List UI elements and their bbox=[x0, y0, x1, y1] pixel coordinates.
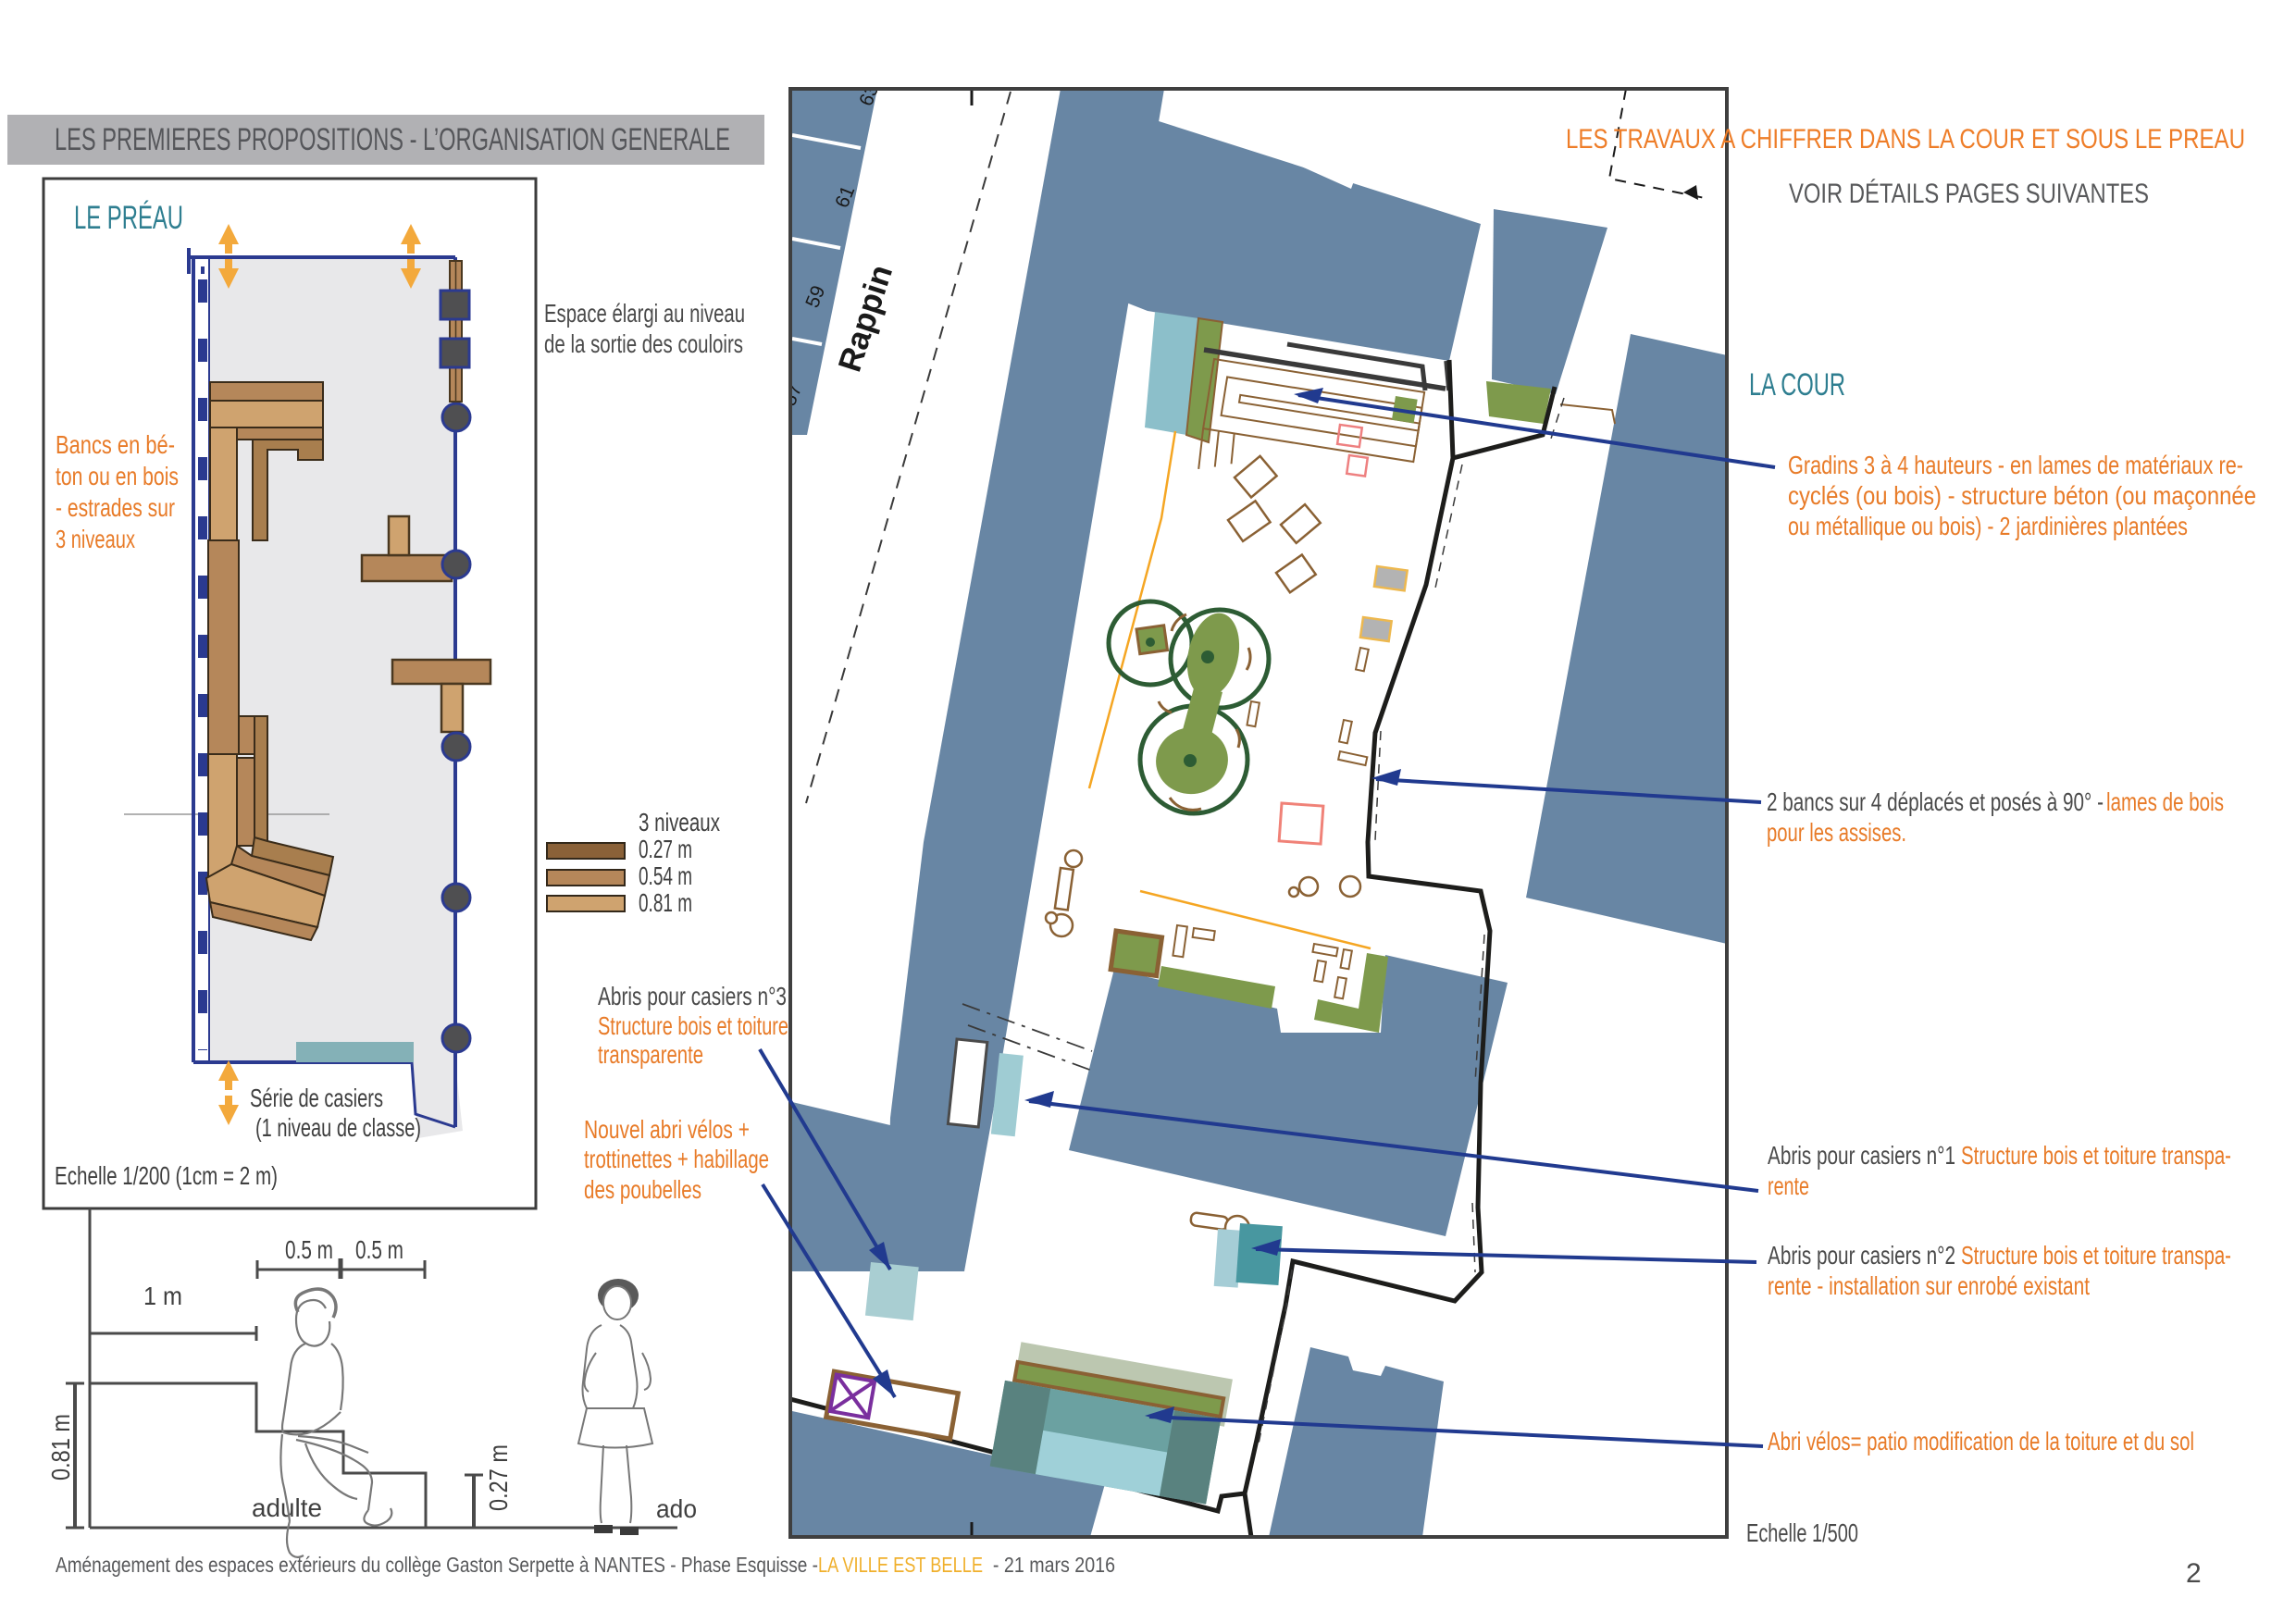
svg-text:rente: rente bbox=[1768, 1171, 1809, 1200]
svg-text:0.27 m: 0.27 m bbox=[639, 835, 692, 863]
svg-text:de la sortie des couloirs: de la sortie des couloirs bbox=[544, 329, 743, 358]
svg-text:Abris pour casiers n°2: Abris pour casiers n°2 bbox=[1768, 1241, 1955, 1270]
svg-text:LE PRÉAU: LE PRÉAU bbox=[74, 200, 183, 236]
svg-text:3 niveaux: 3 niveaux bbox=[56, 525, 135, 553]
svg-text:LA VILLE EST BELLE: LA VILLE EST BELLE bbox=[818, 1553, 983, 1577]
svg-text:LES TRAVAUX A CHIFFRER DANS LA: LES TRAVAUX A CHIFFRER DANS LA COUR ET S… bbox=[1566, 124, 2245, 155]
svg-text:Structure bois et toiture tran: Structure bois et toiture transpa- bbox=[1961, 1141, 2231, 1170]
svg-text:- estrades sur: - estrades sur bbox=[56, 493, 175, 522]
svg-text:2: 2 bbox=[2186, 1558, 2202, 1589]
svg-text:2 bancs sur 4 déplacés et posé: 2 bancs sur 4 déplacés et posés à 90° - bbox=[1767, 787, 2104, 816]
svg-text:ado: ado bbox=[656, 1494, 697, 1523]
svg-text:0.5 m: 0.5 m bbox=[285, 1235, 333, 1264]
svg-text:pour les assises.: pour les assises. bbox=[1767, 818, 1906, 847]
svg-text:Echelle 1/200 (1cm = 2 m): Echelle 1/200 (1cm = 2 m) bbox=[55, 1161, 278, 1190]
svg-text:trottinettes + habillage: trottinettes + habillage bbox=[584, 1145, 769, 1173]
svg-text:ou métallique ou bois) - 2 jar: ou métallique ou bois) - 2 jardinières p… bbox=[1788, 512, 2188, 540]
svg-text:des poubelles: des poubelles bbox=[584, 1175, 701, 1204]
svg-text:Gradins 3 à 4 hauteurs - en la: Gradins 3 à 4 hauteurs - en lames de mat… bbox=[1788, 451, 2243, 479]
svg-text:LA COUR: LA COUR bbox=[1749, 367, 1845, 403]
svg-text:Abris pour casiers n°3: Abris pour casiers n°3 bbox=[598, 982, 787, 1010]
svg-text:0.81 m: 0.81 m bbox=[639, 888, 692, 917]
svg-text:Nouvel abri vélos +: Nouvel abri vélos + bbox=[584, 1115, 750, 1144]
svg-text:0.54 m: 0.54 m bbox=[639, 861, 692, 890]
svg-text:Abri vélos= patio modification: Abri vélos= patio modification de la toi… bbox=[1768, 1427, 2194, 1456]
svg-text:- 21 mars 2016: - 21 mars 2016 bbox=[983, 1553, 1115, 1577]
svg-text:VOIR DÉTAILS PAGES SUIVANTES: VOIR DÉTAILS PAGES SUIVANTES bbox=[1789, 179, 2149, 209]
svg-text:Série de casiers: Série de casiers bbox=[250, 1084, 383, 1112]
svg-text:lames de bois: lames de bois bbox=[2106, 787, 2224, 816]
svg-text:(1 niveau de classe): (1 niveau de classe) bbox=[255, 1113, 421, 1142]
svg-text:Structure bois et toiture: Structure bois et toiture bbox=[598, 1011, 788, 1040]
svg-text:1 m: 1 m bbox=[143, 1282, 182, 1310]
svg-text:transparente: transparente bbox=[598, 1040, 703, 1069]
svg-text:LES PREMIERES PROPOSITIONS - L: LES PREMIERES PROPOSITIONS - L’ORGANISAT… bbox=[55, 122, 730, 157]
svg-text:Abris pour casiers n°1: Abris pour casiers n°1 bbox=[1768, 1141, 1955, 1170]
svg-text:cyclés (ou bois) -: cyclés (ou bois) - structure béton (ou m… bbox=[1788, 481, 2256, 510]
svg-text:0.5 m: 0.5 m bbox=[355, 1235, 403, 1264]
svg-text:Bancs en bé-: Bancs en bé- bbox=[56, 430, 175, 459]
svg-text:Echelle 1/500: Echelle 1/500 bbox=[1746, 1518, 1858, 1547]
svg-text:0.81 m: 0.81 m bbox=[46, 1414, 75, 1481]
svg-text:Aménagement des espaces extéri: Aménagement des espaces extérieurs du co… bbox=[56, 1553, 818, 1577]
svg-text:Espace élargi au niveau: Espace élargi au niveau bbox=[544, 299, 745, 328]
svg-text:rente - installation sur enro: rente - installation sur enrobé existant bbox=[1768, 1271, 2090, 1300]
svg-text:0.27 m: 0.27 m bbox=[484, 1444, 513, 1511]
svg-text:3 niveaux: 3 niveaux bbox=[639, 808, 720, 836]
svg-text:ton ou en bois: ton ou en bois bbox=[56, 462, 179, 490]
svg-text:Structure bois et toiture tran: Structure bois et toiture transpa- bbox=[1961, 1241, 2231, 1270]
